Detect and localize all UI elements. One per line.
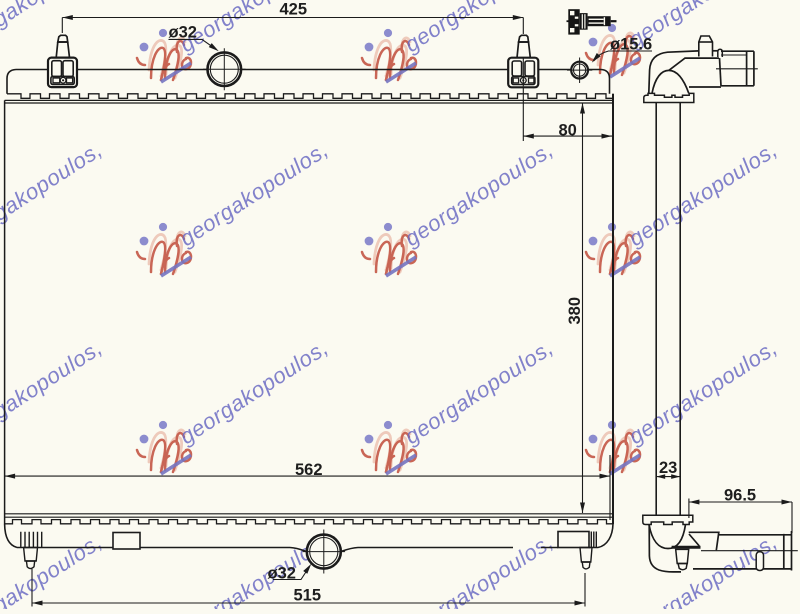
- svg-text:562: 562: [295, 461, 323, 479]
- svg-text:425: 425: [280, 1, 308, 19]
- svg-text:515: 515: [294, 587, 322, 605]
- svg-text:80: 80: [559, 121, 577, 139]
- svg-text:96.5: 96.5: [724, 487, 756, 505]
- svg-text:23: 23: [659, 459, 677, 477]
- svg-text:ø32: ø32: [169, 24, 197, 42]
- svg-text:380: 380: [566, 297, 584, 325]
